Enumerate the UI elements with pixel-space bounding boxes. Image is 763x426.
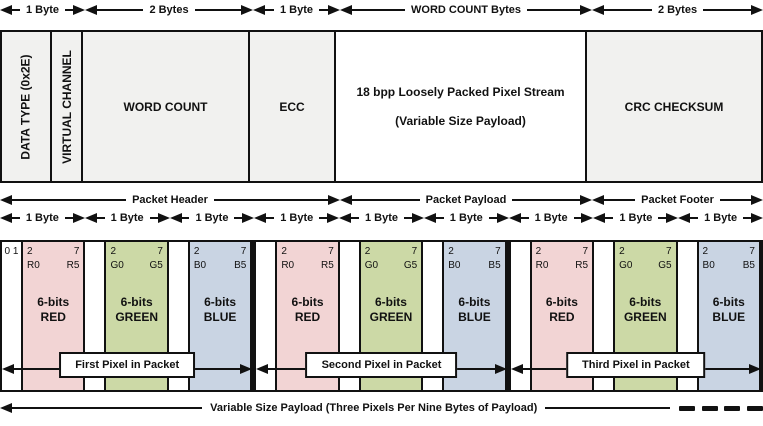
sig-lo: B0 [703,259,715,273]
arrow-line [404,217,412,219]
section-arrow-footer: Packet Footer [592,193,763,207]
field-virtual-channel: VIRTUAL CHANNEL [52,32,83,181]
byte-span-row: 1 Byte 1 Byte 1 Byte 1 Byte 1 Byte 1 Byt… [0,211,763,225]
arrow-line [352,199,420,201]
sig-lo: R0 [27,259,40,273]
top-byte-width-row: 1 Byte 2 Bytes 1 Byte WORD COUNT Bytes 2… [0,2,763,18]
bit-hi: 7 [74,245,80,259]
arrow-right-icon [581,213,593,223]
field-crc-label: CRC CHECKSUM [625,100,724,114]
arrow-right-icon [580,195,592,205]
byte-name-line1: 6-bits [194,295,246,310]
sig-lo: B0 [194,259,206,273]
arrow-left-icon [0,403,12,413]
field-ecc-label: ECC [279,100,304,114]
arrow-right-icon [580,5,592,15]
byte-span-label: 1 Byte [105,212,150,224]
signal-range-row: G0G5 [110,259,162,273]
arrow-right-icon [497,213,509,223]
pixel-group-3: 27 R0R5 6-bitsRED 27 G0G5 6-bitsGREEN 27… [509,240,763,392]
arrow-left-icon [253,5,265,15]
byte-name-line1: 6-bits [281,295,333,310]
arrow-right-icon [73,213,85,223]
byte-span-arrow: 1 Byte [593,211,678,225]
signal-range-row: B0B5 [703,259,755,273]
arrow-line [12,217,20,219]
arrow-left-icon [511,364,523,374]
bit-lo: 2 [619,245,625,259]
arrow-line [65,9,73,11]
sig-lo: R0 [281,259,294,273]
byte-name-line1: 6-bits [448,295,500,310]
section-arrow-header: Packet Header [0,193,340,207]
byte-span-label: 1 Byte [189,212,234,224]
arrow-left-icon [339,213,351,223]
variable-payload-annotation: Variable Size Payload (Three Pixels Per … [0,399,763,417]
arrow-right-icon [666,213,678,223]
sig-lo: R0 [536,259,549,273]
bit-hi: 7 [241,245,247,259]
section-arrow-payload: Packet Payload [340,193,592,207]
arrow-line [319,9,328,11]
arrow-line [743,217,751,219]
arrow-left-icon [593,213,605,223]
arrow-line [319,217,327,219]
pixel-caption: First Pixel in Packet [59,352,195,378]
byte-name: 6-bitsBLUE [194,295,246,325]
sig-hi: R5 [321,259,334,273]
byte-name-line1: 6-bits [27,295,79,310]
arrow-left-icon [0,213,12,223]
arrow-line [658,217,666,219]
byte-name-line2: BLUE [703,310,755,325]
bit-index-row: 27 [703,245,755,259]
bit-hi: 7 [749,245,755,259]
bit-lo: 2 [194,245,200,259]
arrow-line [436,217,444,219]
sig-hi: G5 [658,259,671,273]
section-label: Packet Footer [635,194,720,206]
byte-span-arrow: 1 Byte [424,211,509,225]
arrow-line [234,217,242,219]
byte-span-label: 1 Byte [529,212,574,224]
byte-span-arrow: 1 Byte [678,211,763,225]
bit-index-row: 27 [281,245,333,259]
bit-hi: 7 [412,245,418,259]
arrow-line [97,217,105,219]
sig-hi: R5 [67,259,80,273]
byte-width-arrow: 2 Bytes [592,2,763,18]
byte-name: 6-bitsGREEN [110,295,162,325]
bit-index-row: 27 [365,245,417,259]
arrow-left-icon [424,213,436,223]
arrow-left-icon [0,5,12,15]
byte-span-label: 1 Byte [274,212,319,224]
sig-lo: G0 [619,259,632,273]
bit-hi: 7 [666,245,672,259]
byte-name-line1: 6-bits [365,295,417,310]
bit-lo: 2 [536,245,542,259]
arrow-line [12,407,202,409]
sig-lo: B0 [448,259,460,273]
field-pixel-stream: 18 bpp Loosely Packed Pixel Stream (Vari… [336,32,587,181]
byte-name-line2: GREEN [365,310,417,325]
byte-name-line2: RED [27,310,79,325]
byte-name: 6-bitsBLUE [703,295,755,325]
byte-name: 6-bitsRED [536,295,588,325]
byte-name: 6-bitsGREEN [619,295,671,325]
byte-span-label: 1 Byte [613,212,658,224]
bit-hi: 7 [157,245,163,259]
byte-span-label: 1 Byte [20,212,65,224]
byte-name-line2: BLUE [194,310,246,325]
section-label: Packet Payload [420,194,513,206]
sig-lo: G0 [110,259,123,273]
arrow-right-icon [240,364,252,374]
arrow-line [351,217,359,219]
arrow-line [545,407,670,409]
bit-hi: 7 [328,245,334,259]
dash [724,406,740,411]
byte-width-arrow: 1 Byte [0,2,85,18]
bit-hi: 7 [583,245,589,259]
arrow-right-icon [242,213,254,223]
byte-width-label: WORD COUNT Bytes [405,4,527,16]
field-pixel-stream-label: 18 bpp Loosely Packed Pixel Stream [356,85,564,99]
arrow-left-icon [678,213,690,223]
signal-range-row: B0B5 [448,259,500,273]
signal-range-row: R0R5 [281,259,333,273]
arrow-right-icon [328,5,340,15]
section-label: Packet Header [126,194,214,206]
byte-width-label: 2 Bytes [652,4,703,16]
byte-name-line1: 6-bits [703,295,755,310]
bit-index-row: 27 [536,245,588,259]
bit-lo: 2 [365,245,371,259]
byte-name-line2: GREEN [110,310,162,325]
sig-hi: G5 [404,259,417,273]
arrow-right-icon [241,5,253,15]
sig-hi: G5 [150,259,163,273]
arrow-right-icon [158,213,170,223]
field-data-type: DATA TYPE (0x2E) [2,32,52,181]
arrow-left-icon [592,195,604,205]
arrow-line [604,9,652,11]
byte-name: 6-bitsRED [27,295,79,325]
arrow-line [214,199,328,201]
arrow-line [195,9,241,11]
arrow-line [182,217,190,219]
arrow-line [605,217,613,219]
field-word-count: WORD COUNT [83,32,250,181]
arrow-left-icon [85,213,97,223]
arrow-right-icon [412,213,424,223]
byte-width-arrow: WORD COUNT Bytes [340,2,592,18]
arrow-line [352,9,405,11]
byte-name-line2: GREEN [619,310,671,325]
bit-lo: 2 [27,245,33,259]
byte-span-label: 1 Byte [698,212,743,224]
bit-lo: 2 [281,245,287,259]
arrow-line [690,217,698,219]
arrow-right-icon [328,195,340,205]
bit-index-row: 27 [27,245,79,259]
byte-width-arrow: 2 Bytes [85,2,253,18]
pixel-group-1: 0 1 27 R0R5 6-bitsRED 27 G0G5 6-bitsGREE… [0,240,254,392]
dash [702,406,718,411]
signal-range-row: G0G5 [619,259,671,273]
bit-index-row: 27 [448,245,500,259]
byte-width-arrow: 1 Byte [253,2,340,18]
arrow-left-icon [340,5,352,15]
arrow-line [150,217,158,219]
signal-range-row: R0R5 [536,259,588,273]
byte-name-line1: 6-bits [536,295,588,310]
arrow-line [12,9,20,11]
bit-lo: 2 [448,245,454,259]
byte-span-label: 1 Byte [444,212,489,224]
arrow-line [720,199,751,201]
arrow-line [703,9,751,11]
bit-index-row: 27 [110,245,162,259]
arrow-right-icon [749,364,761,374]
byte-span-arrow: 1 Byte [509,211,594,225]
pixel-bytes-row: 0 1 27 R0R5 6-bitsRED 27 G0G5 6-bitsGREE… [0,240,763,392]
byte-name: 6-bitsRED [281,295,333,325]
signal-range-row: R0R5 [27,259,79,273]
byte-span-arrow: 1 Byte [254,211,339,225]
field-pixel-stream-sublabel: (Variable Size Payload) [395,114,526,128]
packet-section-row: Packet Header Packet Payload Packet Foot… [0,193,763,207]
arrow-line [521,217,529,219]
dash [747,406,763,411]
byte-name: 6-bitsBLUE [448,295,500,325]
continuation-dashes-icon [679,406,763,411]
arrow-right-icon [751,5,763,15]
arrow-line [265,9,274,11]
bit-index-row: 27 [194,245,246,259]
field-data-type-label: DATA TYPE (0x2E) [19,54,33,159]
bit-hi: 7 [495,245,501,259]
arrow-left-icon [340,195,352,205]
arrow-line [97,9,143,11]
arrow-left-icon [2,364,14,374]
arrow-left-icon [592,5,604,15]
arrow-line [512,199,580,201]
arrow-left-icon [256,364,268,374]
arrow-line [604,199,635,201]
byte-name: 6-bitsGREEN [365,295,417,325]
sig-hi: B5 [488,259,500,273]
variable-payload-label: Variable Size Payload (Three Pixels Per … [202,402,545,414]
dash [679,406,695,411]
arrow-left-icon [254,213,266,223]
field-crc: CRC CHECKSUM [587,32,761,181]
signal-range-row: G0G5 [365,259,417,273]
pixel-group-2: 27 R0R5 6-bitsRED 27 G0G5 6-bitsGREEN 27… [254,240,508,392]
arrow-line [266,217,274,219]
byte-width-label: 2 Bytes [143,4,194,16]
arrow-right-icon [751,213,763,223]
packet-fields-row: DATA TYPE (0x2E) VIRTUAL CHANNEL WORD CO… [0,30,763,183]
byte-width-label: 1 Byte [274,4,319,16]
pixel-caption: Third Pixel in Packet [566,352,706,378]
arrow-right-icon [327,213,339,223]
byte-span-arrow: 1 Byte [0,211,85,225]
arrow-line [65,217,73,219]
field-ecc: ECC [250,32,336,181]
pixel-caption: Second Pixel in Packet [306,352,458,378]
sig-hi: B5 [743,259,755,273]
arrow-line [527,9,580,11]
byte-name-line1: 6-bits [110,295,162,310]
arrow-left-icon [85,5,97,15]
arrow-left-icon [170,213,182,223]
bit-index-row: 27 [619,245,671,259]
byte-span-arrow: 1 Byte [339,211,424,225]
arrow-line [574,217,582,219]
field-word-count-label: WORD COUNT [124,100,208,114]
arrow-left-icon [509,213,521,223]
byte-span-arrow: 1 Byte [85,211,170,225]
byte-width-label: 1 Byte [20,4,65,16]
byte-name-line2: BLUE [448,310,500,325]
sig-hi: B5 [234,259,246,273]
packet-structure-diagram: 1 Byte 2 Bytes 1 Byte WORD COUNT Bytes 2… [0,0,763,426]
arrow-line [12,199,126,201]
byte-name-line1: 6-bits [619,295,671,310]
arrow-left-icon [0,195,12,205]
byte-name-line2: RED [281,310,333,325]
arrow-right-icon [73,5,85,15]
arrow-right-icon [495,364,507,374]
byte-span-label: 1 Byte [359,212,404,224]
sig-hi: R5 [575,259,588,273]
arrow-right-icon [751,195,763,205]
bit-lo: 2 [703,245,709,259]
field-virtual-channel-label: VIRTUAL CHANNEL [60,50,74,164]
bit-lo: 2 [110,245,116,259]
sig-lo: G0 [365,259,378,273]
signal-range-row: B0B5 [194,259,246,273]
arrow-line [489,217,497,219]
byte-span-arrow: 1 Byte [170,211,255,225]
byte-name-line2: RED [536,310,588,325]
